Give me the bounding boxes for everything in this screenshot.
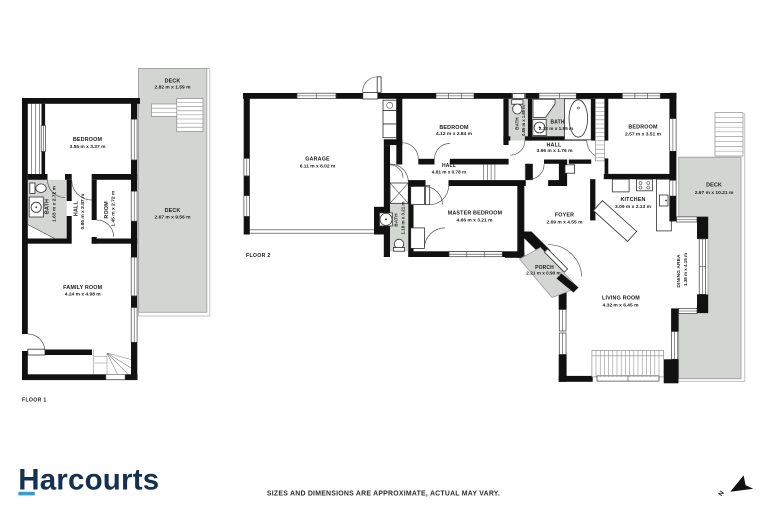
svg-text:SIZES AND DIMENSIONS ARE APPRO: SIZES AND DIMENSIONS ARE APPROXIMATE, AC… — [267, 490, 500, 497]
svg-text:HALL: HALL — [547, 142, 563, 148]
svg-text:DECK: DECK — [706, 183, 722, 189]
svg-text:3.09 m x 2.13 m: 3.09 m x 2.13 m — [615, 204, 652, 210]
svg-text:ROOM: ROOM — [104, 201, 110, 219]
svg-text:6.11 m x 6.02 m: 6.11 m x 6.02 m — [300, 163, 336, 169]
svg-text:3.96 m x 1.76 m: 3.96 m x 1.76 m — [537, 148, 574, 154]
svg-text:FLOOR 2: FLOOR 2 — [246, 253, 271, 259]
svg-text:BATH: BATH — [515, 117, 520, 129]
svg-text:1.18 m x 3.21 m: 1.18 m x 3.21 m — [401, 201, 406, 234]
svg-text:2.32 m x 1.85 m: 2.32 m x 1.85 m — [539, 126, 573, 131]
svg-text:2.67 m x 9.56 m: 2.67 m x 9.56 m — [155, 215, 192, 221]
svg-text:FLOOR 1: FLOOR 1 — [22, 398, 47, 404]
svg-text:KITCHEN: KITCHEN — [620, 197, 645, 203]
svg-text:GARAGE: GARAGE — [305, 157, 330, 163]
svg-text:0.85 m x 1.85 m: 0.85 m x 1.85 m — [521, 105, 526, 136]
svg-text:MASTER BEDROOM: MASTER BEDROOM — [448, 211, 503, 217]
svg-text:4.24 m x 4.98 m: 4.24 m x 4.98 m — [65, 291, 102, 297]
svg-text:BEDROOM: BEDROOM — [73, 137, 103, 143]
svg-text:2.57 m x 3.51 m: 2.57 m x 3.51 m — [625, 131, 662, 137]
svg-text:DECK: DECK — [165, 208, 181, 214]
svg-text:2.67 m x 10.21 m: 2.67 m x 10.21 m — [695, 190, 734, 196]
svg-text:DINING AREA: DINING AREA — [676, 254, 682, 288]
svg-text:LIVING ROOM: LIVING ROOM — [602, 296, 640, 302]
svg-text:BATH: BATH — [45, 199, 51, 214]
svg-text:4.66 m x 3.21 m: 4.66 m x 3.21 m — [457, 217, 494, 223]
svg-text:1.45 m x 2.72 m: 1.45 m x 2.72 m — [111, 190, 117, 227]
svg-text:1.63 m x 2.72 m: 1.63 m x 2.72 m — [51, 185, 57, 222]
svg-text:BATH: BATH — [394, 213, 400, 227]
svg-text:2.69 m x 4.55 m: 2.69 m x 4.55 m — [547, 219, 584, 225]
svg-text:BEDROOM: BEDROOM — [439, 125, 469, 131]
svg-text:HALL: HALL — [442, 163, 456, 169]
svg-text:1.38 m x 4.15 m: 1.38 m x 4.15 m — [683, 253, 688, 286]
svg-text:3.55 m x 3.37 m: 3.55 m x 3.37 m — [70, 144, 107, 150]
svg-text:4.32 m x 6.45 m: 4.32 m x 6.45 m — [603, 302, 640, 308]
svg-text:0.86 m x 2.87 m: 0.86 m x 2.87 m — [80, 193, 86, 230]
svg-text:2.21 m x 0.90 m: 2.21 m x 0.90 m — [526, 270, 560, 275]
svg-text:4.81 m x 0.78 m: 4.81 m x 0.78 m — [432, 169, 466, 174]
svg-text:DECK: DECK — [165, 79, 181, 85]
svg-text:Harcourts: Harcourts — [18, 464, 159, 497]
svg-text:BATH: BATH — [550, 120, 564, 126]
svg-text:FOYER: FOYER — [555, 213, 574, 219]
svg-text:FAMILY ROOM: FAMILY ROOM — [63, 285, 102, 291]
svg-text:HALL: HALL — [73, 201, 79, 217]
svg-text:2.82 m x 1.59 m: 2.82 m x 1.59 m — [155, 85, 192, 91]
svg-text:BEDROOM: BEDROOM — [628, 125, 658, 131]
svg-text:4.12 m x 2.84 m: 4.12 m x 2.84 m — [436, 131, 473, 137]
